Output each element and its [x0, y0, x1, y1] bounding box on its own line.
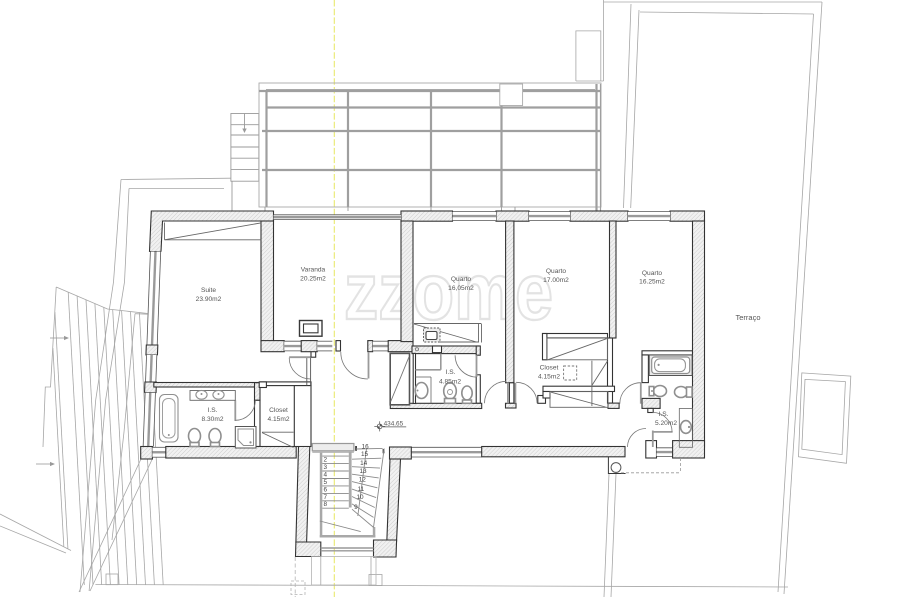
svg-text:4.15m2: 4.15m2	[268, 416, 290, 423]
svg-text:Quarto: Quarto	[546, 268, 566, 275]
svg-text:5.20m2: 5.20m2	[655, 420, 677, 427]
svg-text:11: 11	[358, 486, 365, 493]
svg-text:8.30m2: 8.30m2	[202, 416, 224, 423]
svg-text:3: 3	[324, 464, 328, 471]
svg-text:10: 10	[357, 494, 365, 501]
svg-text:4: 4	[324, 471, 328, 478]
svg-text:4.85m2: 4.85m2	[439, 378, 461, 385]
svg-text:17.00m2: 17.00m2	[543, 277, 569, 284]
svg-text:16,05m2: 16,05m2	[448, 285, 474, 292]
svg-text:I.S.: I.S.	[659, 411, 669, 418]
svg-text:I.S.: I.S.	[208, 407, 218, 414]
svg-text:16.25m2: 16.25m2	[639, 279, 665, 286]
svg-text:13: 13	[360, 468, 368, 475]
svg-text:16: 16	[362, 443, 370, 450]
svg-text:8: 8	[324, 501, 328, 508]
svg-text:I.S.: I.S.	[446, 369, 456, 376]
svg-text:14: 14	[360, 460, 368, 467]
svg-text:20.25m2: 20.25m2	[300, 276, 326, 283]
svg-text:23.90m2: 23.90m2	[196, 296, 222, 303]
svg-text:Terraço: Terraço	[735, 313, 760, 322]
svg-text:9: 9	[354, 504, 358, 511]
svg-text:4.15m2: 4.15m2	[538, 373, 560, 380]
svg-text:6: 6	[324, 486, 328, 493]
svg-text:12: 12	[359, 477, 367, 484]
svg-text:15: 15	[361, 451, 369, 458]
svg-text:Quarto: Quarto	[451, 276, 471, 283]
svg-text:5: 5	[324, 479, 328, 486]
svg-text:434.65: 434.65	[384, 420, 404, 427]
svg-text:Varanda: Varanda	[301, 267, 326, 274]
svg-text:Suite: Suite	[201, 287, 216, 294]
svg-text:Closet: Closet	[269, 407, 288, 414]
svg-text:7: 7	[324, 494, 328, 501]
svg-text:Closet: Closet	[540, 365, 559, 372]
svg-text:2: 2	[324, 457, 328, 464]
svg-text:Quarto: Quarto	[642, 270, 662, 277]
